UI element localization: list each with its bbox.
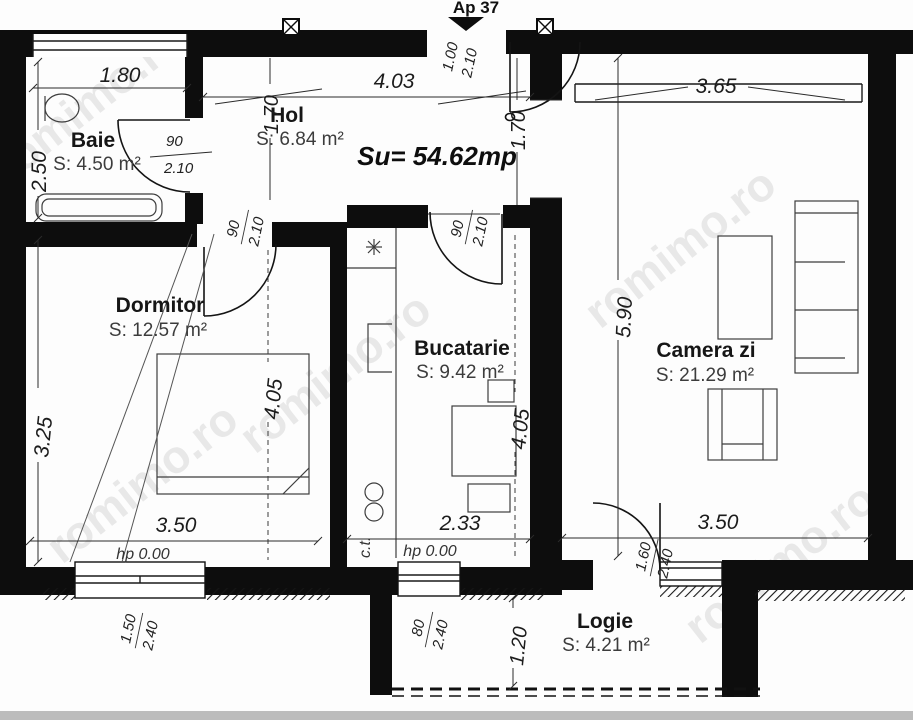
column-marker-icon (283, 19, 299, 35)
room-area-bucatarie: S: 9.42 m² (416, 362, 504, 383)
floor-plan: romimo.ro romimo.ro romimo.ro romimo.ro … (0, 0, 913, 720)
dim-bucatarie-width: 2.33 (439, 512, 481, 535)
room-area-camera-zi: S: 21.29 m² (656, 365, 754, 386)
dim-hol-depth-left: 1.70 (261, 95, 283, 134)
room-label-bucatarie: Bucatarie (414, 337, 510, 360)
column-marker-icon (537, 19, 553, 35)
dim-camera-zi-bottom-width: 3.50 (698, 511, 739, 534)
room-label-baie: Baie (71, 129, 115, 152)
scan-edge-bar (0, 711, 913, 720)
svg-text:90: 90 (166, 133, 183, 150)
dim-logie-depth: 1.20 (506, 625, 532, 666)
baie-window (33, 34, 187, 57)
paper-background (0, 0, 913, 720)
bucatarie-window (398, 562, 460, 596)
room-area-logie: S: 4.21 m² (562, 635, 650, 656)
boiler-label: c.t. (357, 537, 374, 558)
room-label-dormitor: Dormitor (116, 294, 205, 317)
room-area-baie: S: 4.50 m² (53, 154, 141, 175)
dim-camera-zi-height: 5.90 (612, 296, 637, 338)
dim-baie-height: 2.50 (28, 151, 51, 193)
dim-dormitor-depth: 4.05 (260, 377, 287, 420)
dim-camera-zi-width: 3.65 (696, 75, 737, 98)
apartment-label: Ap 37 (453, 0, 499, 17)
dim-dormitor-height: 3.25 (30, 415, 57, 458)
room-label-camera-zi: Camera zi (656, 339, 755, 362)
floor-plan-canvas: romimo.ro romimo.ro romimo.ro romimo.ro … (0, 0, 913, 720)
dim-dormitor-width: 3.50 (156, 514, 197, 537)
svg-text:2.10: 2.10 (163, 160, 194, 177)
dormitor-window (75, 562, 205, 598)
level-mark-bucatarie: hp 0.00 (403, 543, 456, 560)
room-area-dormitor: S: 12.57 m² (109, 320, 207, 341)
dim-bucatarie-depth: 4.05 (507, 407, 534, 450)
dim-hol-depth-right: 1.70 (508, 111, 530, 150)
dim-baie-width: 1.80 (100, 64, 141, 87)
vent-symbol-icon (366, 239, 382, 255)
level-mark-dormitor: hp 0.00 (116, 546, 169, 563)
room-label-logie: Logie (577, 610, 633, 633)
dim-hol-width: 4.03 (374, 70, 415, 93)
total-usable-area-label: Su= 54.62mp (357, 141, 517, 171)
